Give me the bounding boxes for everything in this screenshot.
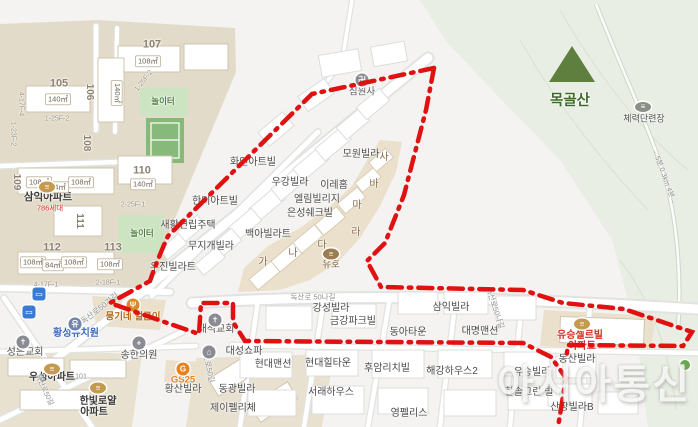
church-icon[interactable]: ✝ [209, 314, 222, 327]
poi-yuseung-villa[interactable]: 유승빌라 [514, 368, 551, 378]
block-number: 113 [104, 243, 122, 254]
area-label: 108㎡ [135, 55, 161, 67]
poi-geumgang-park-ville[interactable]: 금강파크빌 [330, 317, 376, 327]
poi-saehwal-row-house[interactable]: 새활연립주택 [160, 221, 215, 231]
poi-ugang-villa[interactable]: 우강빌라 [272, 178, 309, 188]
poi-ellim-village[interactable]: 엘림빌리지 [294, 195, 340, 205]
poi-dongsan-villa[interactable]: 동산빌라 [559, 355, 596, 365]
area-label: 108㎡ [61, 256, 87, 268]
poi-donggwang-villa[interactable]: 동광빌라 [219, 385, 256, 395]
block-code: 4-17F-4 [18, 92, 25, 117]
poi-youngpellis[interactable]: 영펠리스 [391, 409, 428, 419]
area-label: 108㎡ [97, 258, 123, 270]
block-number: 112 [43, 243, 61, 254]
kindergarten-icon[interactable]: 유 [69, 318, 82, 331]
area-label: 108㎡ [68, 176, 94, 188]
poi-huam-richville[interactable]: 후암리치빌 [364, 364, 410, 374]
poi-hwangseong-kindergarten[interactable]: 황성유치원 [53, 329, 99, 339]
poi-hanmi-artville[interactable]: 한미아트빌 [192, 197, 238, 207]
block-letter-ma: 마 [352, 201, 361, 211]
poi-samik-villa[interactable]: 삼익빌라 [433, 303, 470, 313]
poi-daeseong-sofa[interactable]: 대성쇼파 [226, 347, 263, 357]
area-label: 140㎡ [130, 178, 156, 190]
gs25-icon[interactable]: G [177, 363, 190, 376]
bus-stop-icon[interactable]: ▭ [33, 288, 46, 301]
poi-mujigae-villa[interactable]: 무지개빌라 [188, 242, 234, 252]
block-code: 1-23F-2 [10, 122, 17, 147]
poi-sanjang-villa-b[interactable]: 산장빌라B [550, 403, 593, 413]
playground-label: 놀이터 [130, 229, 153, 238]
block-code: 2-25F-1 [121, 202, 146, 209]
poi-gs25[interactable]: GS25 [171, 375, 195, 385]
poi-ujin-villart[interactable]: 우진빌라트 [150, 263, 196, 273]
block-letter-na: 나 [288, 249, 297, 259]
block-number: 111 [74, 213, 84, 229]
poi-irehome[interactable]: 이레홈 [320, 181, 348, 191]
area-label: 140㎡ [45, 93, 71, 105]
poi-hwangsan-villa[interactable]: 황산빌라 [165, 385, 202, 395]
poi-yuseung-selleville[interactable]: 유승셀르빌 [557, 331, 603, 341]
poi-eunseong-chekville[interactable]: 은성쉐크빌 [287, 209, 333, 219]
apartment-icon[interactable]: ≡ [44, 364, 60, 375]
poi-gangseong-villa[interactable]: 강성빌라 [313, 304, 350, 314]
poi-mowon-villa[interactable]: 모원빌라 [343, 150, 380, 160]
restaurant-icon[interactable]: Ψ [127, 299, 140, 312]
restaurant-icon[interactable]: ≡ [323, 249, 339, 260]
poi-yuseung-selleville-apt[interactable]: 아파트 [568, 342, 596, 352]
poi-baeka-villart[interactable]: 백아빌라트 [245, 230, 291, 240]
poi-songhan-clinic[interactable]: 송한의원 [121, 351, 158, 361]
samik-apt-units: 786세대 [37, 204, 63, 212]
poi-haegang-house2[interactable]: 해강하우스2 [426, 367, 478, 377]
block-letter-ga: 가 [258, 258, 267, 268]
area-label: 140㎡ [111, 80, 123, 106]
block-number: 107 [143, 40, 161, 51]
poi-samik-apt[interactable]: 삼익아파트 [24, 192, 72, 203]
poi-mokgolsan[interactable]: 목골산 [550, 94, 590, 109]
sofa-shop-icon[interactable]: ⌂ [203, 346, 216, 359]
road-label: 독산로 50나길 [291, 293, 336, 301]
block-letter-ra: 라 [351, 228, 360, 238]
poi-yuho[interactable]: 유호 [322, 260, 339, 270]
bus-stop-icon[interactable]: ▭ [23, 306, 36, 319]
mountain-peak-icon [549, 46, 595, 82]
poi-hwain-artville[interactable]: 화인아트빌 [230, 158, 276, 168]
park-icon[interactable] [680, 360, 690, 370]
poi-fitness-area[interactable]: 체력단련장 [623, 115, 664, 124]
block-number: 105 [50, 79, 68, 90]
temple-icon[interactable]: 卍 [356, 74, 369, 87]
playground-label: 놀이터 [151, 97, 174, 106]
poi-seorae-house[interactable]: 서래하우스 [308, 388, 354, 398]
poi-hyundai-mansion[interactable]: 현대맨션 [255, 360, 292, 370]
poi-hanbit-royal[interactable]: 한빛로얄 [80, 397, 117, 407]
apartment-icon[interactable]: ≡ [90, 383, 106, 394]
block-number: 108 [81, 135, 91, 152]
poi-hanbit-royal-apt[interactable]: 아파트 [80, 408, 108, 418]
clinic-icon[interactable]: + [133, 337, 146, 350]
block-number: 109 [11, 174, 21, 191]
poi-simwonsa[interactable]: 심원사 [349, 87, 375, 97]
church-icon[interactable]: ✝ [17, 336, 30, 349]
poi-mungine-restaurant[interactable]: 뭉기네 얼큰이 [105, 312, 160, 322]
poi-daeseok-church[interactable]: 대석교회 [198, 325, 235, 335]
block-letter-ba: 바 [369, 180, 378, 190]
block-number: 110 [133, 166, 151, 177]
block-code: 1-25F-2 [45, 116, 70, 123]
poi-hansol-green-ville[interactable]: 한솔그린 빌 [505, 388, 554, 398]
poi-hyundai-hilltown[interactable]: 현대힐타운 [305, 359, 351, 369]
apartment-icon[interactable]: ≡ [574, 319, 590, 330]
block-letter-sa: 사 [379, 153, 388, 163]
map-canvas[interactable]: 아시아통신 심원사모원빌라화인아트빌우강빌라이레홈엘림빌리지은성쉐크빌한미아트빌… [0, 0, 698, 427]
block-code: 2-18F-1 [96, 280, 121, 287]
poi-jay-feliche[interactable]: 제이펠리체 [210, 404, 256, 414]
poi-daemyeong-mansion[interactable]: 대명맨션 [462, 327, 499, 337]
poi-seongeun-church[interactable]: 성은교회 [7, 348, 44, 358]
road-label: 101 [75, 374, 87, 381]
poi-donga-town[interactable]: 동아타운 [390, 328, 427, 338]
fitness-icon[interactable]: ≡ [635, 102, 651, 112]
apartment-icon[interactable]: ≡ [39, 182, 55, 193]
block-number: 106 [84, 84, 94, 101]
